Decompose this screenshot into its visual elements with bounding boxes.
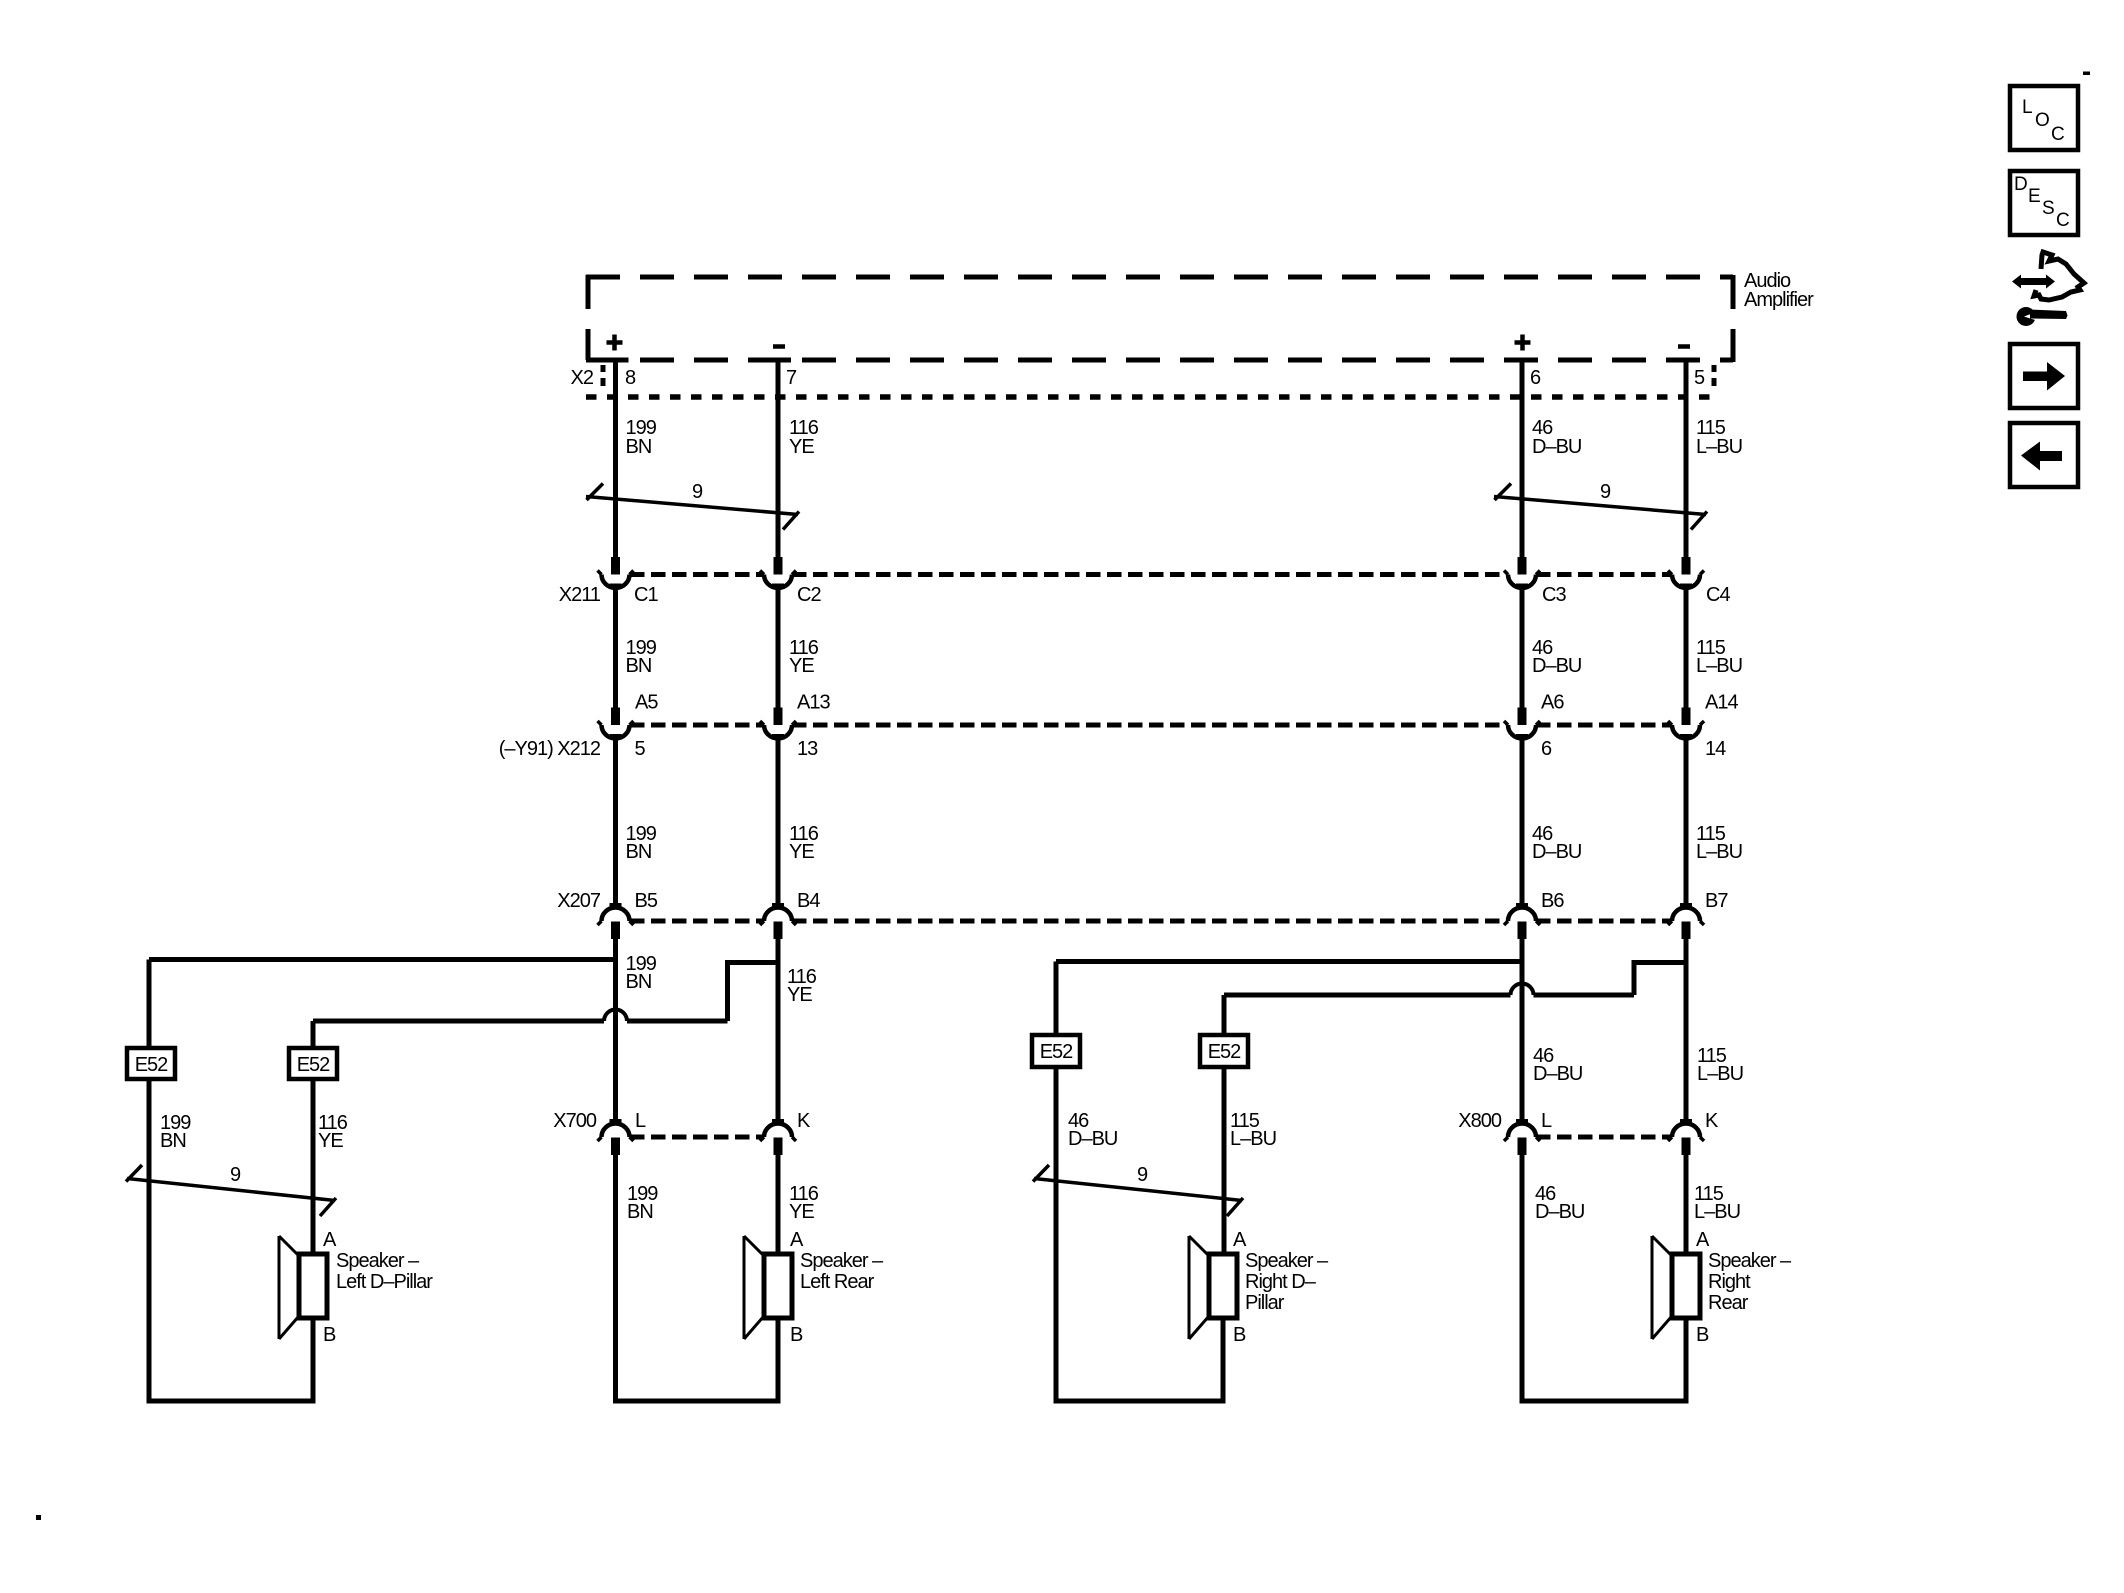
- svg-text:E52: E52: [1040, 1041, 1073, 1063]
- svg-text:K: K: [797, 1110, 811, 1132]
- svg-text:Speaker –: Speaker –: [800, 1250, 884, 1272]
- svg-text:Right: Right: [1708, 1271, 1751, 1293]
- svg-text:E: E: [2028, 186, 2040, 207]
- svg-text:E52: E52: [135, 1054, 168, 1076]
- svg-text:6: 6: [1541, 738, 1552, 760]
- svg-text:D–BU: D–BU: [1532, 655, 1581, 677]
- svg-text:L–BU: L–BU: [1697, 1063, 1743, 1085]
- svg-text:B: B: [1233, 1324, 1246, 1346]
- svg-text:BN: BN: [160, 1130, 186, 1152]
- svg-text:C4: C4: [1706, 584, 1730, 606]
- svg-text:X2: X2: [571, 367, 594, 389]
- svg-text:E52: E52: [297, 1054, 330, 1076]
- svg-text:Speaker –: Speaker –: [1708, 1250, 1792, 1272]
- svg-text:C2: C2: [797, 584, 821, 606]
- svg-text:YE: YE: [789, 841, 814, 863]
- svg-text:L–BU: L–BU: [1696, 841, 1742, 863]
- svg-text:YE: YE: [789, 1201, 814, 1223]
- svg-text:YE: YE: [318, 1130, 343, 1152]
- svg-text:Amplifier: Amplifier: [1744, 289, 1814, 311]
- svg-text:L: L: [2022, 97, 2032, 118]
- svg-text:(–Y91) X212: (–Y91) X212: [499, 738, 601, 760]
- svg-text:Right D–: Right D–: [1245, 1271, 1317, 1293]
- svg-text:B: B: [1696, 1324, 1709, 1346]
- svg-text:D: D: [2014, 174, 2027, 195]
- svg-text:S: S: [2042, 198, 2054, 219]
- svg-text:D–BU: D–BU: [1068, 1128, 1117, 1150]
- svg-text:O: O: [2035, 110, 2049, 131]
- svg-text:B: B: [323, 1324, 336, 1346]
- svg-text:X800: X800: [1458, 1110, 1502, 1132]
- svg-text:YE: YE: [789, 655, 814, 677]
- svg-text:B4: B4: [797, 890, 820, 912]
- svg-text:A: A: [790, 1229, 804, 1251]
- svg-text:9: 9: [230, 1164, 241, 1186]
- svg-text:D–BU: D–BU: [1532, 841, 1581, 863]
- svg-text:7: 7: [786, 367, 797, 389]
- svg-text:C: C: [2051, 124, 2064, 145]
- svg-text:9: 9: [692, 481, 703, 503]
- svg-text:Left Rear: Left Rear: [800, 1271, 875, 1293]
- svg-text:Speaker –: Speaker –: [336, 1250, 420, 1272]
- svg-text:L–BU: L–BU: [1696, 436, 1742, 458]
- svg-text:L–BU: L–BU: [1696, 655, 1742, 677]
- svg-text:B5: B5: [635, 890, 658, 912]
- svg-text:BN: BN: [627, 1201, 653, 1223]
- svg-text:X211: X211: [559, 584, 601, 606]
- svg-text:Pillar: Pillar: [1245, 1292, 1285, 1314]
- svg-text:X207: X207: [557, 890, 601, 912]
- svg-text:E52: E52: [1208, 1041, 1241, 1063]
- svg-text:L: L: [1541, 1110, 1552, 1132]
- svg-text:8: 8: [625, 367, 636, 389]
- svg-text:BN: BN: [626, 655, 652, 677]
- svg-text:A: A: [1233, 1229, 1247, 1251]
- svg-text:C: C: [2056, 210, 2069, 231]
- svg-text:L–BU: L–BU: [1694, 1201, 1740, 1223]
- svg-text:BN: BN: [626, 841, 652, 863]
- svg-text:YE: YE: [789, 436, 814, 458]
- svg-text:A5: A5: [635, 692, 658, 714]
- svg-text:A13: A13: [797, 692, 830, 714]
- svg-text:X700: X700: [553, 1110, 597, 1132]
- svg-text:A: A: [1696, 1229, 1710, 1251]
- svg-text:13: 13: [797, 738, 818, 760]
- svg-text:C1: C1: [634, 584, 658, 606]
- svg-text:5: 5: [1694, 367, 1705, 389]
- svg-text:BN: BN: [626, 436, 652, 458]
- svg-text:Speaker –: Speaker –: [1245, 1250, 1329, 1272]
- svg-text:5: 5: [635, 738, 646, 760]
- svg-text:L–BU: L–BU: [1230, 1128, 1276, 1150]
- svg-text:9: 9: [1600, 481, 1611, 503]
- svg-text:9: 9: [1137, 1164, 1148, 1186]
- svg-text:14: 14: [1705, 738, 1726, 760]
- svg-text:BN: BN: [626, 971, 652, 993]
- svg-text:B7: B7: [1705, 890, 1728, 912]
- svg-text:C3: C3: [1542, 584, 1566, 606]
- svg-text:6: 6: [1530, 367, 1541, 389]
- svg-text:L: L: [635, 1110, 646, 1132]
- svg-text:YE: YE: [787, 984, 812, 1006]
- svg-text:D–BU: D–BU: [1535, 1201, 1584, 1223]
- svg-text:B: B: [790, 1324, 803, 1346]
- svg-text:A6: A6: [1541, 692, 1564, 714]
- svg-text:A: A: [323, 1229, 337, 1251]
- svg-text:Rear: Rear: [1708, 1292, 1749, 1314]
- svg-text:D–BU: D–BU: [1532, 436, 1581, 458]
- svg-text:Left D–Pillar: Left D–Pillar: [336, 1271, 433, 1293]
- svg-text:K: K: [1705, 1110, 1719, 1132]
- svg-text:D–BU: D–BU: [1533, 1063, 1582, 1085]
- svg-text:A14: A14: [1705, 692, 1738, 714]
- svg-text:B6: B6: [1541, 890, 1564, 912]
